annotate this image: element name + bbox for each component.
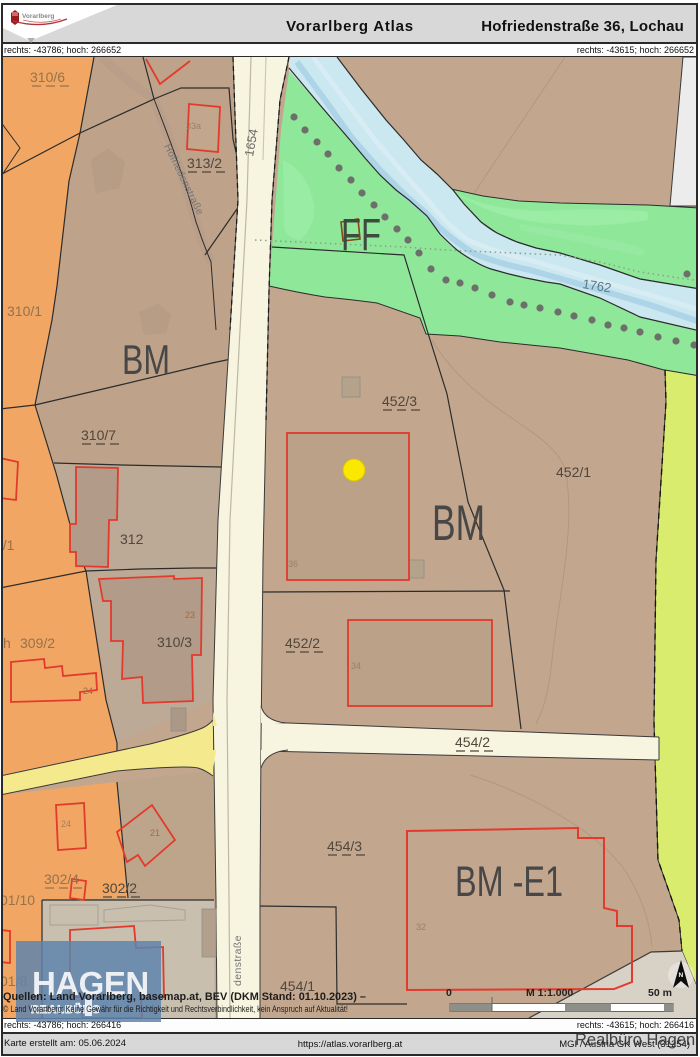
svg-text:denstraße: denstraße (232, 935, 244, 986)
svg-text:N: N (679, 972, 684, 979)
svg-text:BM: BM (432, 495, 485, 551)
svg-text:23: 23 (185, 610, 195, 620)
svg-text:302/4: 302/4 (44, 871, 79, 887)
svg-text:9/1: 9/1 (0, 537, 15, 553)
svg-text:310/3: 310/3 (157, 634, 192, 650)
svg-text:50 m: 50 m (648, 987, 672, 999)
svg-text:454/3: 454/3 (327, 838, 362, 854)
svg-text:21: 21 (150, 828, 160, 838)
svg-text:309/2: 309/2 (20, 635, 55, 651)
svg-text:312: 312 (120, 531, 144, 547)
svg-text:BM: BM (122, 336, 170, 383)
svg-text:24: 24 (61, 819, 71, 829)
svg-text:FF: FF (341, 209, 381, 260)
svg-text:310/6: 310/6 (30, 69, 65, 85)
svg-text:454/2: 454/2 (455, 734, 490, 750)
svg-text:310/1: 310/1 (7, 303, 42, 319)
svg-text:BM -E1: BM -E1 (455, 858, 563, 906)
svg-text:M 1:1.000: M 1:1.000 (526, 987, 573, 999)
svg-text:452/2: 452/2 (285, 635, 320, 651)
svg-text:36: 36 (288, 559, 298, 569)
svg-text:34: 34 (351, 661, 361, 671)
svg-text:313/2: 313/2 (187, 155, 222, 171)
svg-text:01/10: 01/10 (0, 892, 35, 908)
svg-text:452/3: 452/3 (382, 393, 417, 409)
svg-text:310/7: 310/7 (81, 427, 116, 443)
svg-text:h: h (3, 635, 11, 651)
svg-text:24: 24 (83, 686, 93, 696)
svg-text:32: 32 (416, 922, 426, 932)
svg-text:452/1: 452/1 (556, 464, 591, 480)
svg-text:33a: 33a (186, 121, 201, 131)
svg-text:0: 0 (446, 987, 452, 999)
svg-text:302/2: 302/2 (102, 880, 137, 896)
